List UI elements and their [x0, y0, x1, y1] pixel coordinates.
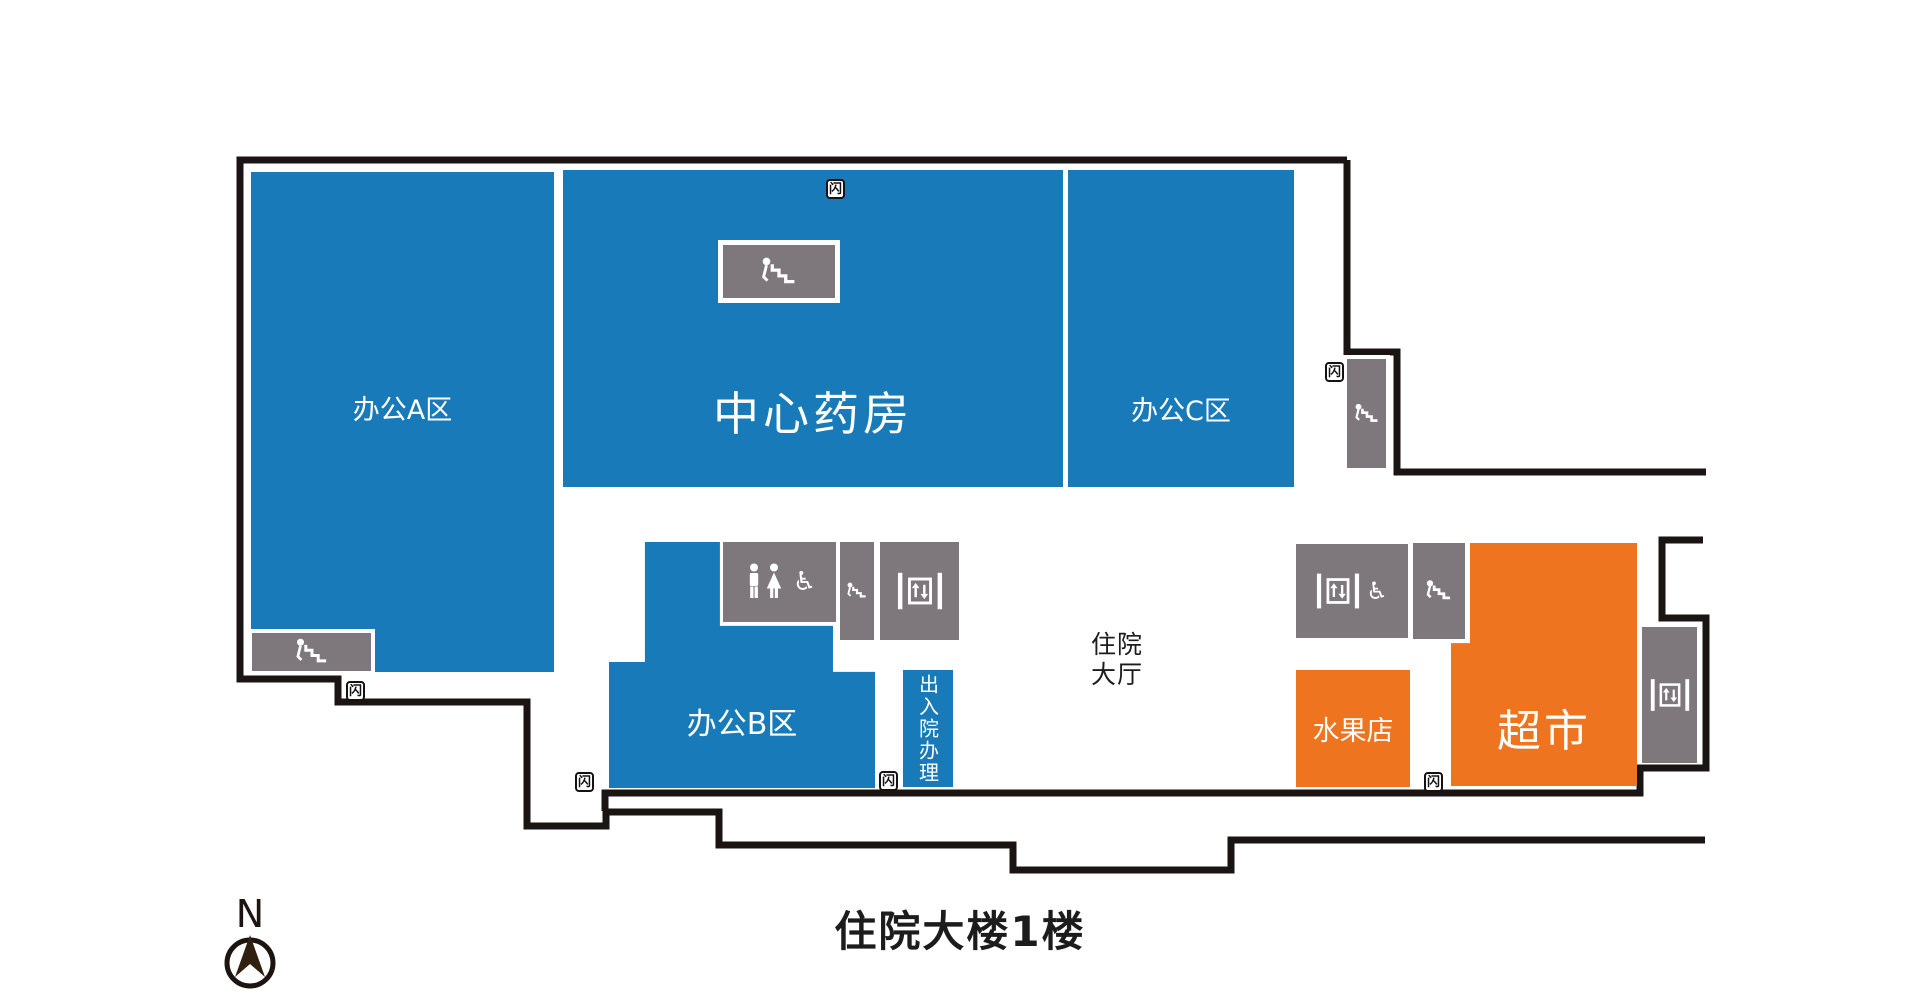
room-admission: 出入院办理 [903, 670, 953, 787]
room-supermarket: 超市 [1451, 543, 1637, 786]
toilet-box: ♿ [723, 542, 836, 622]
wheelchair-icon: ♿ [793, 569, 816, 595]
elevator-box-east-annex [1642, 627, 1697, 763]
elevator-wheelchair-box: ♿ [1296, 544, 1408, 638]
stairs-box-east [1413, 543, 1465, 639]
room-office-c: 办公C区 [1068, 170, 1294, 487]
stairs-box-center [840, 542, 874, 640]
hall-label: 住院 大厅 [1091, 630, 1143, 689]
room-fruit-shop-label: 水果店 [1313, 709, 1394, 748]
room-pharmacy-label: 中心药房 [563, 378, 1063, 444]
stairs-box-southwest [248, 629, 375, 675]
room-supermarket-label: 超市 [1451, 695, 1637, 759]
exit-door-icon: 闪 [346, 681, 365, 701]
exit-door-glyph: 闪 [829, 183, 842, 196]
stairs-icon [289, 636, 335, 668]
exit-door-glyph: 闪 [349, 685, 362, 698]
exit-door-icon: 闪 [1424, 772, 1443, 792]
exit-door-icon: 闪 [575, 772, 594, 792]
exit-door-glyph: 闪 [1427, 776, 1440, 789]
exit-door-icon: 闪 [1325, 362, 1344, 382]
exit-door-glyph: 闪 [882, 775, 895, 788]
room-pharmacy: 中心药房 [563, 170, 1063, 487]
stairs-icon [1350, 399, 1384, 429]
room-admission-label: 出入院办理 [903, 670, 953, 787]
stairs-icon [1421, 576, 1457, 606]
elevator-icon [1316, 572, 1360, 610]
room-fruit-shop: 水果店 [1296, 670, 1410, 787]
wheelchair-icon: ♿ [1366, 579, 1388, 603]
elevator-box-center [880, 542, 959, 640]
room-office-c-label: 办公C区 [1068, 389, 1294, 428]
compass-icon [218, 927, 282, 991]
room-office-a-label: 办公A区 [251, 388, 554, 427]
elevator-icon [1650, 678, 1690, 712]
floor-title: 住院大楼1楼 [700, 898, 1220, 959]
stairs-icon [843, 578, 871, 604]
elevator-icon [897, 571, 943, 611]
exit-door-icon: 闪 [826, 179, 845, 199]
exit-door-glyph: 闪 [578, 776, 591, 789]
stairs-box-northeast [1343, 355, 1390, 472]
stairs-box-pharmacy [718, 240, 840, 303]
hospital-floor-plan: 办公A区 中心药房 办公C区 办公B区 出入院办理 水果店 超市 住院 大厅 [0, 0, 1920, 1001]
stairs-icon [754, 254, 804, 290]
toilet-icon [743, 562, 787, 602]
exit-door-icon: 闪 [879, 771, 898, 791]
room-office-b-label: 办公B区 [609, 699, 875, 743]
exit-door-glyph: 闪 [1328, 366, 1341, 379]
room-office-a: 办公A区 [251, 172, 554, 672]
